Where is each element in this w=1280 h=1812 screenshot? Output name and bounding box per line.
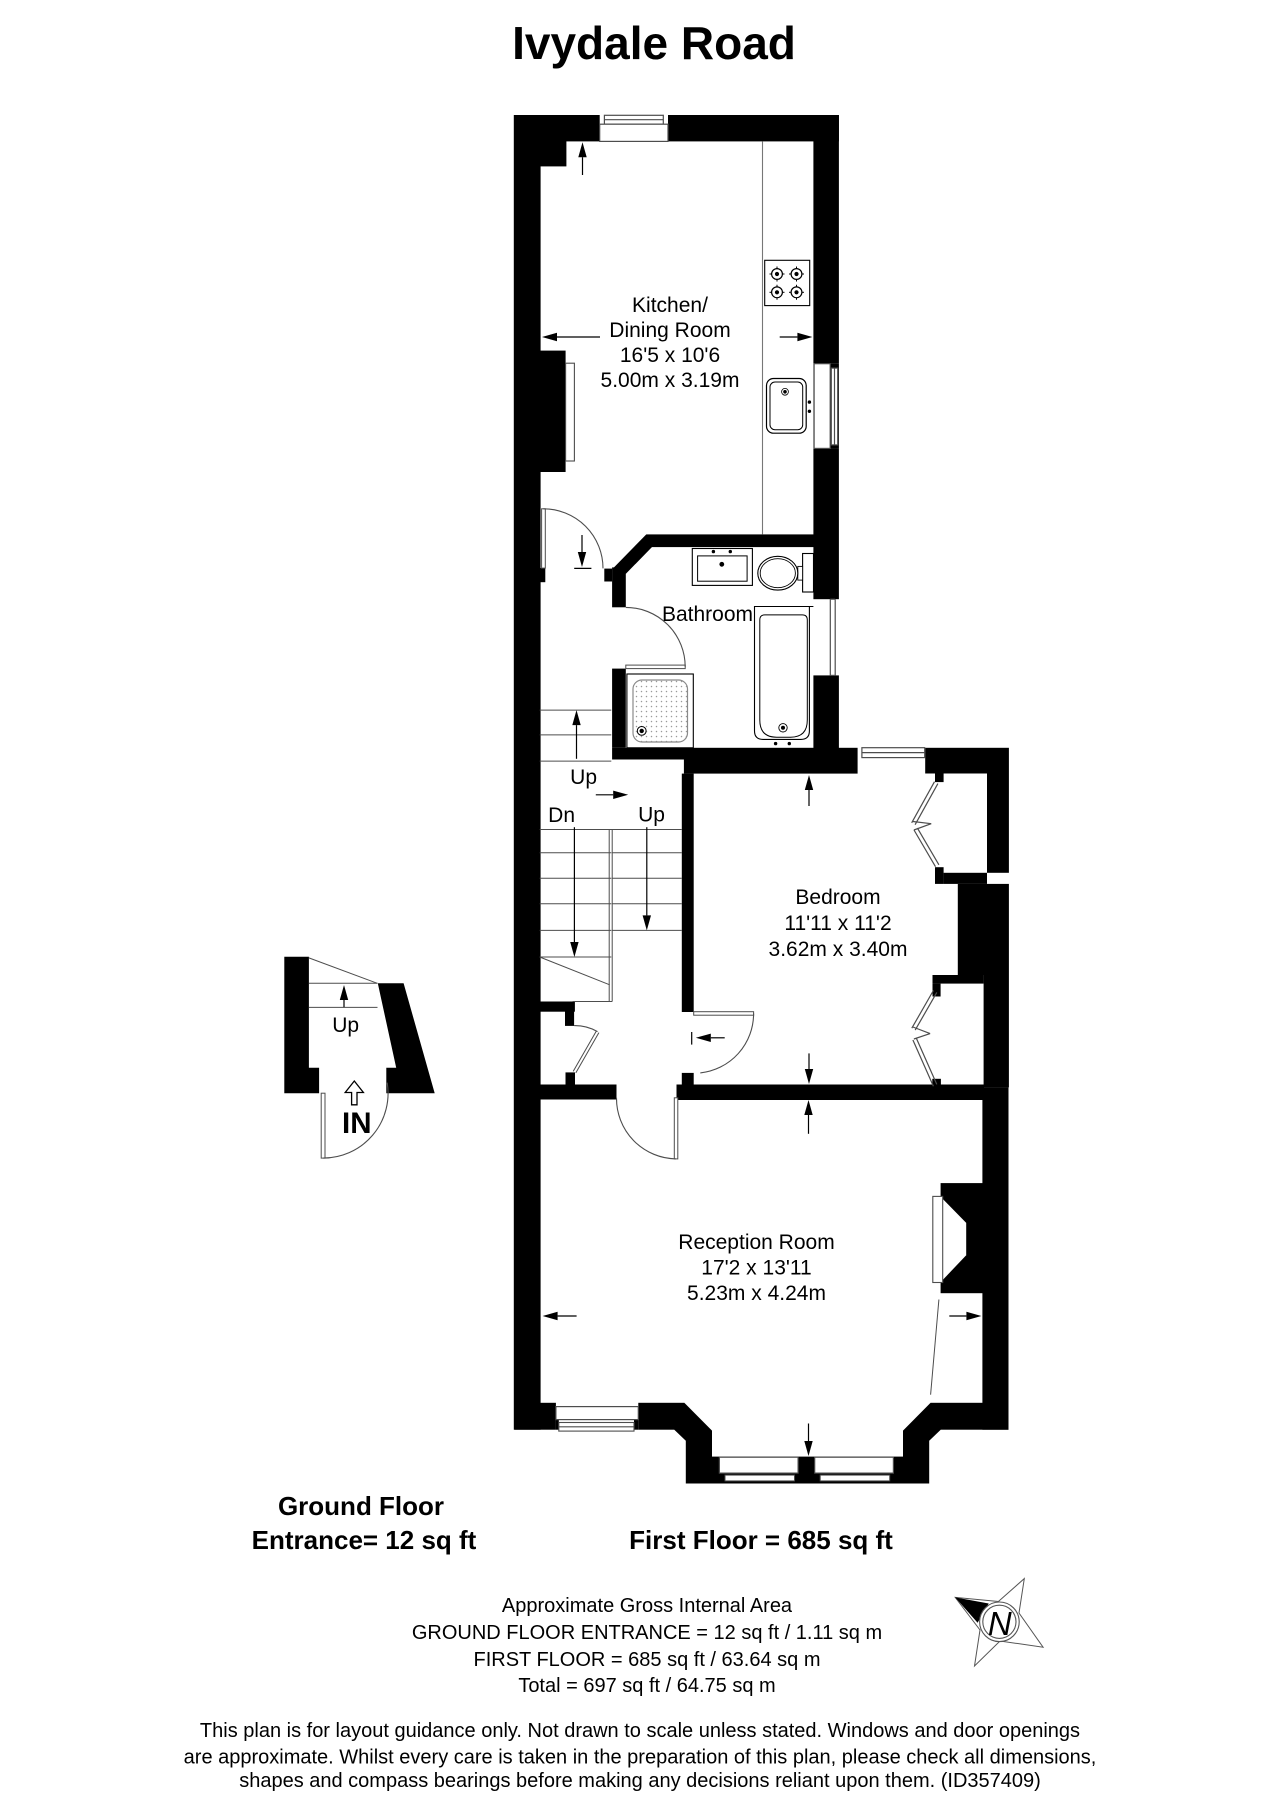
- svg-text:3.62m x 3.40m: 3.62m x 3.40m: [769, 938, 908, 961]
- svg-text:shapes and compass bearings be: shapes and compass bearings before makin…: [239, 1770, 1041, 1792]
- svg-text:11'11 x 11'2: 11'11 x 11'2: [784, 912, 891, 935]
- svg-text:5.00m x 3.19m: 5.00m x 3.19m: [601, 369, 740, 392]
- svg-text:5.23m x 4.24m: 5.23m x 4.24m: [687, 1282, 826, 1305]
- svg-text:Kitchen/: Kitchen/: [632, 294, 708, 317]
- svg-text:Ivydale Road: Ivydale Road: [512, 17, 796, 69]
- svg-text:IN: IN: [342, 1107, 372, 1140]
- svg-text:Ground Floor: Ground Floor: [278, 1491, 444, 1521]
- svg-text:Up: Up: [570, 766, 597, 789]
- svg-text:Up: Up: [332, 1014, 359, 1037]
- svg-text:Bathroom: Bathroom: [662, 603, 753, 626]
- svg-text:17'2 x 13'11: 17'2 x 13'11: [701, 1257, 811, 1280]
- svg-text:Up: Up: [638, 804, 665, 827]
- svg-text:FIRST FLOOR = 685 sq ft / 63.6: FIRST FLOOR = 685 sq ft / 63.64 sq m: [474, 1649, 821, 1671]
- svg-text:This plan is for layout guidan: This plan is for layout guidance only. N…: [200, 1720, 1080, 1742]
- svg-text:Entrance= 12 sq ft: Entrance= 12 sq ft: [252, 1525, 477, 1555]
- svg-text:Approximate Gross Internal Are: Approximate Gross Internal Area: [502, 1595, 793, 1617]
- svg-text:First Floor = 685 sq ft: First Floor = 685 sq ft: [629, 1525, 893, 1555]
- svg-text:16'5 x 10'6: 16'5 x 10'6: [620, 344, 720, 367]
- svg-text:Dn: Dn: [548, 804, 575, 827]
- svg-text:N: N: [988, 1605, 1012, 1642]
- svg-text:Total = 697 sq ft / 64.75 sq m: Total = 697 sq ft / 64.75 sq m: [518, 1675, 775, 1697]
- svg-text:are approximate. Whilst every: are approximate. Whilst every care is ta…: [184, 1747, 1097, 1769]
- svg-text:GROUND FLOOR ENTRANCE = 12 sq: GROUND FLOOR ENTRANCE = 12 sq ft / 1.11 …: [412, 1622, 882, 1644]
- svg-text:Dining Room: Dining Room: [609, 319, 730, 342]
- svg-text:Reception Room: Reception Room: [678, 1231, 834, 1254]
- svg-text:Bedroom: Bedroom: [795, 886, 880, 909]
